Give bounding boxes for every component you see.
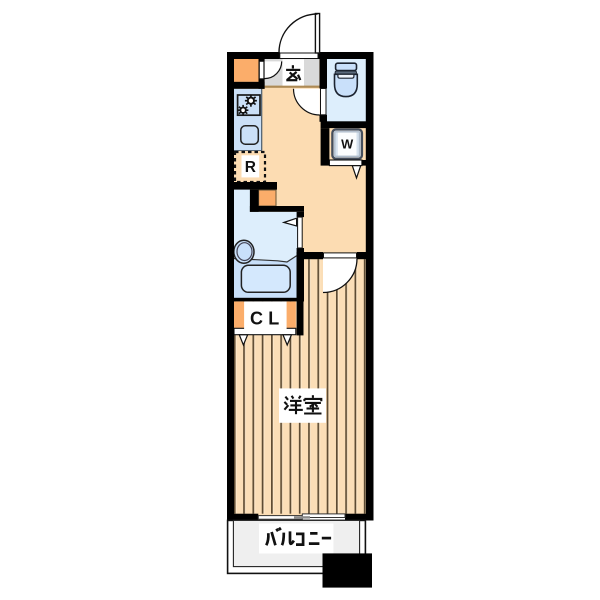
- svg-text:C: C: [250, 309, 263, 329]
- svg-text:L: L: [268, 309, 279, 329]
- svg-text:R: R: [245, 159, 256, 176]
- svg-text:W: W: [341, 137, 354, 152]
